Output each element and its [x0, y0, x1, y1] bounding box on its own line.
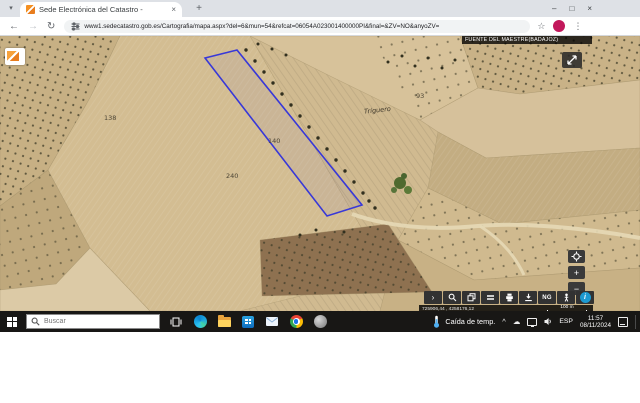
task-view-icon: [170, 316, 182, 328]
date-label: 08/11/2024: [580, 322, 611, 329]
catastro-logo-icon: [5, 48, 25, 65]
app-button[interactable]: [313, 314, 327, 329]
window-controls: – □ ×: [552, 0, 592, 17]
layers-icon: [467, 293, 476, 302]
file-explorer-button[interactable]: [217, 314, 231, 329]
edge-icon: [194, 315, 207, 328]
aerial-map[interactable]: 138 140 240 93 Triguero: [0, 36, 640, 311]
browser-menu-icon[interactable]: ⋮: [573, 21, 582, 32]
streetview-button[interactable]: [557, 291, 575, 304]
edge-button[interactable]: [193, 314, 207, 329]
windows-taskbar: Caída de temp. ^ ☁ ESP 11:57 08/11/2024: [0, 311, 640, 332]
info-button[interactable]: i: [576, 291, 594, 304]
task-view-button[interactable]: [169, 314, 183, 329]
pinned-apps: [169, 314, 327, 329]
download-button[interactable]: [519, 291, 537, 304]
parcel-label-138: 138: [104, 114, 116, 122]
screen: ▾ Sede Electrónica del Catastro - × + – …: [0, 0, 640, 403]
measure-button[interactable]: [481, 291, 499, 304]
app-icon: [314, 315, 327, 328]
time-label: 11:57: [580, 315, 611, 322]
display-icon[interactable]: [527, 318, 537, 326]
municipality-bar: FUENTE DEL MAESTRE(BADAJOZ): [462, 36, 592, 44]
minimize-button[interactable]: –: [552, 4, 556, 13]
onedrive-cloud-icon[interactable]: ☁: [513, 317, 521, 326]
browser-tabstrip: ▾ Sede Electrónica del Catastro - × + – …: [0, 0, 640, 17]
address-bar[interactable]: [64, 20, 530, 33]
ng-button[interactable]: NG: [538, 291, 556, 304]
search-icon: [31, 317, 40, 326]
empty-area: [0, 332, 640, 403]
tab-close-icon[interactable]: ×: [171, 5, 176, 14]
parcel-label-240: 240: [226, 172, 238, 180]
collapse-toolbar-button[interactable]: ›: [424, 291, 442, 304]
site-info-icon[interactable]: [71, 22, 80, 31]
weather-label: Caída de temp.: [445, 317, 495, 326]
taskbar-search-input[interactable]: [44, 318, 155, 325]
folder-icon: [218, 317, 231, 327]
taskbar-search[interactable]: [26, 314, 160, 329]
maximize-button[interactable]: □: [569, 4, 574, 13]
new-tab-button[interactable]: +: [192, 2, 206, 16]
pegman-icon: [562, 293, 571, 302]
parcel-label-93: 93: [416, 92, 424, 100]
hidden-icons-chevron[interactable]: ^: [502, 317, 506, 326]
clock[interactable]: 11:57 08/11/2024: [580, 315, 611, 329]
printer-icon: [505, 293, 514, 302]
tab-title: Sede Electrónica del Catastro -: [39, 5, 167, 14]
reload-icon[interactable]: ↻: [47, 21, 55, 32]
map-toolbar: ›: [424, 291, 594, 304]
fullscreen-expand-button[interactable]: [562, 52, 582, 68]
map-viewport[interactable]: 138 140 240 93 Triguero FUENTE DEL MAEST…: [0, 36, 640, 311]
search-icon: [448, 293, 457, 302]
envelope-icon: [266, 317, 278, 326]
catastro-favicon-icon: [26, 5, 35, 14]
bookmark-star-icon[interactable]: ☆: [537, 21, 545, 32]
layers-button[interactable]: [462, 291, 480, 304]
geolocate-button[interactable]: [568, 250, 585, 263]
mail-button[interactable]: [265, 314, 279, 329]
weather-widget[interactable]: Caída de temp.: [432, 315, 495, 328]
download-icon: [524, 293, 533, 302]
action-center-icon[interactable]: [618, 317, 628, 327]
crosshair-icon: [571, 251, 582, 262]
info-icon: i: [580, 292, 591, 303]
url-input[interactable]: [84, 23, 523, 30]
start-button[interactable]: [0, 311, 24, 332]
windows-logo-icon: [7, 317, 17, 327]
tab-search-icon[interactable]: ▾: [5, 3, 17, 15]
language-indicator[interactable]: ESP: [559, 318, 573, 325]
thermometer-icon: [432, 315, 441, 328]
system-tray: Caída de temp. ^ ☁ ESP 11:57 08/11/2024: [432, 315, 640, 329]
map-search-button[interactable]: [443, 291, 461, 304]
back-icon[interactable]: ←: [9, 21, 19, 32]
measure-icon: [486, 293, 495, 302]
forward-icon[interactable]: →: [28, 21, 38, 32]
microsoft-store-button[interactable]: [241, 314, 255, 329]
chrome-icon: [290, 315, 303, 328]
show-desktop-divider[interactable]: [635, 315, 636, 329]
store-bag-icon: [242, 316, 254, 328]
browser-tab[interactable]: Sede Electrónica del Catastro - ×: [20, 2, 182, 17]
browser-toolbar: ← → ↻ ☆ ⋮: [0, 17, 640, 36]
chrome-button[interactable]: [289, 314, 303, 329]
parcel-label-140: 140: [268, 137, 280, 145]
zoom-in-button[interactable]: +: [568, 266, 585, 279]
chevron-right-icon: ›: [432, 293, 435, 302]
close-button[interactable]: ×: [587, 4, 592, 13]
print-button[interactable]: [500, 291, 518, 304]
expand-arrows-icon: [566, 54, 578, 66]
speaker-icon[interactable]: [544, 317, 552, 326]
profile-avatar[interactable]: [553, 20, 565, 32]
